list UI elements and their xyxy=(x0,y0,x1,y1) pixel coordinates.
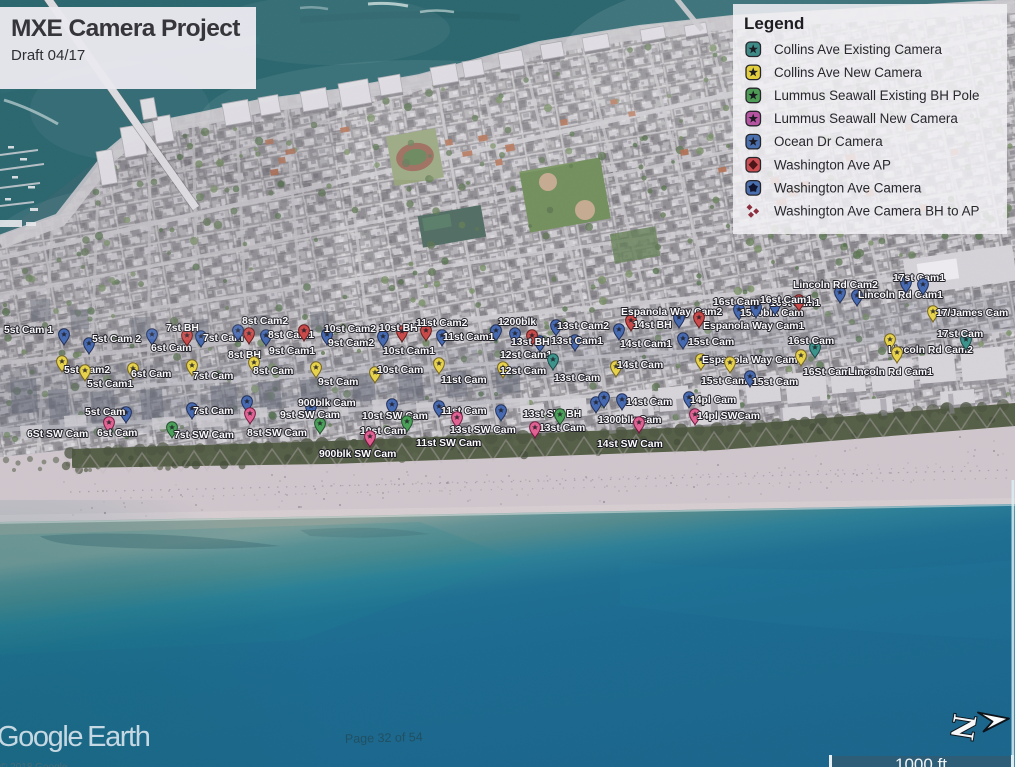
svg-text:Washington Ave Camera: Washington Ave Camera xyxy=(774,180,922,195)
svg-text:Ocean Dr Camera: Ocean Dr Camera xyxy=(774,134,883,149)
svg-text:1000 ft: 1000 ft xyxy=(895,755,947,767)
svg-text:Draft 04/17: Draft 04/17 xyxy=(11,47,85,64)
svg-text:Legend: Legend xyxy=(744,14,804,33)
svg-text:GoogleEarth: GoogleEarth xyxy=(0,721,150,753)
svg-text:Washington Ave AP: Washington Ave AP xyxy=(774,157,891,172)
svg-text:Collins Ave Existing Camera: Collins Ave Existing Camera xyxy=(774,42,943,57)
svg-text:Page 32 of 54: Page 32 of 54 xyxy=(345,730,423,746)
svg-text:Lummus Seawall Existing BH Pol: Lummus Seawall Existing BH Pole xyxy=(774,88,979,103)
svg-text:Collins Ave New Camera: Collins Ave New Camera xyxy=(774,65,922,80)
svg-text:Lummus Seawall New Camera: Lummus Seawall New Camera xyxy=(774,111,958,126)
svg-text:© 2018 Google: © 2018 Google xyxy=(0,762,68,767)
svg-text:MXE Camera Project: MXE Camera Project xyxy=(11,15,240,42)
svg-text:Washington Ave Camera BH to AP: Washington Ave Camera BH to AP xyxy=(774,204,979,219)
